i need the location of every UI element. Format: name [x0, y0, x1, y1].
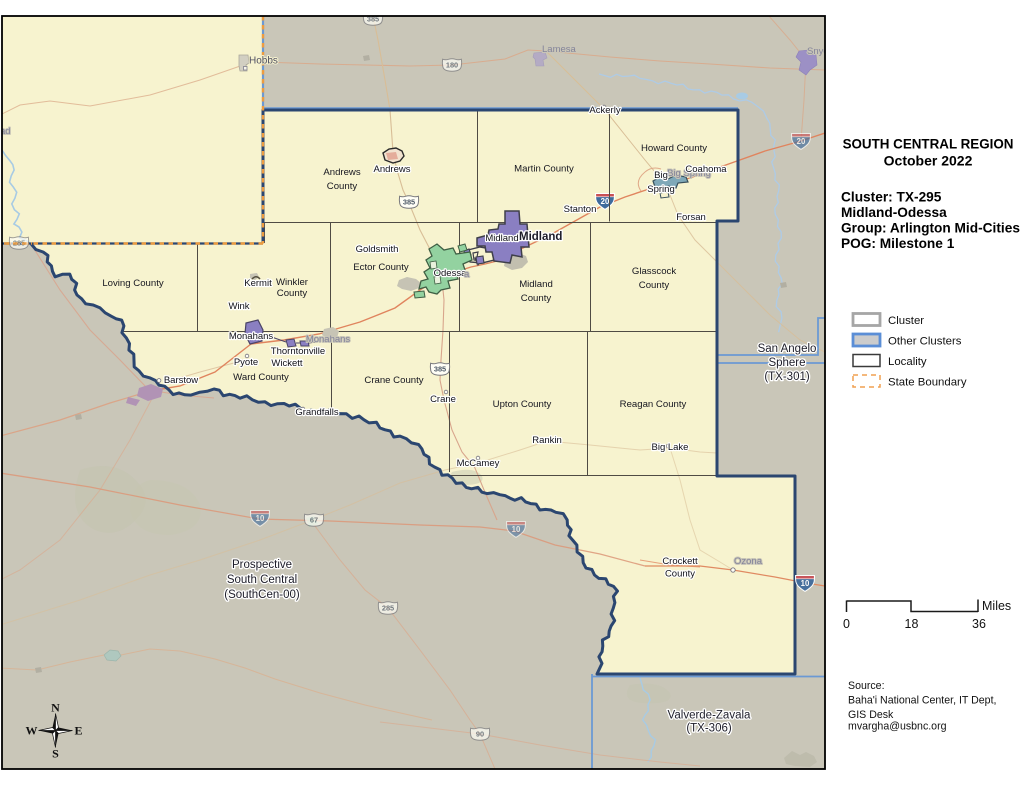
- svg-text:Cluster: Cluster: [888, 315, 924, 327]
- svg-text:(SouthCen-00): (SouthCen-00): [224, 589, 300, 601]
- svg-text:Winkler: Winkler: [276, 277, 309, 288]
- svg-text:180: 180: [446, 61, 458, 70]
- svg-text:10: 10: [801, 579, 810, 588]
- svg-text:SOUTH CENTRAL REGION: SOUTH CENTRAL REGION: [843, 137, 1014, 152]
- svg-text:Ackerly: Ackerly: [589, 105, 620, 116]
- svg-text:a: a: [464, 269, 470, 280]
- svg-text:South Central: South Central: [227, 574, 297, 586]
- svg-text:10: 10: [512, 525, 521, 534]
- svg-text:Monahans: Monahans: [306, 334, 351, 345]
- svg-text:Wink: Wink: [228, 301, 249, 312]
- svg-text:Group: Arlington Mid-Cities: Group: Arlington Mid-Cities: [841, 221, 1020, 236]
- svg-text:385: 385: [434, 365, 446, 374]
- svg-text:Stanton: Stanton: [564, 204, 597, 215]
- svg-text:Reagan County: Reagan County: [620, 399, 687, 410]
- svg-text:Martin County: Martin County: [514, 164, 574, 175]
- svg-text:Glasscock: Glasscock: [632, 266, 676, 277]
- svg-text:Midland: Midland: [519, 231, 562, 243]
- svg-text:Big Lake: Big Lake: [652, 442, 689, 453]
- svg-text:Upton County: Upton County: [493, 399, 552, 410]
- svg-text:Ector County: Ector County: [353, 262, 409, 273]
- svg-text:(TX-301): (TX-301): [764, 371, 810, 383]
- svg-text:Barstow: Barstow: [164, 375, 198, 386]
- svg-text:Monahans: Monahans: [229, 331, 274, 342]
- svg-text:Spring: Spring: [647, 184, 674, 195]
- svg-text:McCamey: McCamey: [457, 458, 500, 469]
- svg-text:Andrews: Andrews: [374, 164, 411, 175]
- svg-text:County: County: [327, 181, 358, 192]
- svg-text:Valverde-Zavala: Valverde-Zavala: [668, 710, 751, 722]
- svg-text:Pyote: Pyote: [234, 357, 258, 368]
- svg-text:Miles: Miles: [982, 599, 1011, 613]
- svg-text:Midland: Midland: [485, 233, 518, 244]
- svg-text:67: 67: [310, 516, 318, 525]
- svg-text:18: 18: [905, 617, 919, 631]
- svg-text:Locality: Locality: [888, 356, 927, 368]
- svg-text:Hobbs: Hobbs: [249, 56, 278, 67]
- svg-text:20: 20: [797, 137, 806, 146]
- svg-text:90: 90: [476, 730, 484, 739]
- svg-text:285: 285: [382, 604, 394, 613]
- svg-text:Kermit: Kermit: [244, 278, 272, 289]
- svg-text:County: County: [639, 280, 670, 291]
- svg-text:E: E: [74, 724, 82, 738]
- svg-text:Loving County: Loving County: [102, 278, 164, 289]
- svg-text:Big: Big: [654, 170, 668, 181]
- svg-text:10: 10: [256, 514, 265, 523]
- svg-text:0: 0: [843, 617, 850, 631]
- svg-text:Wickett: Wickett: [271, 358, 303, 369]
- svg-text:Source:: Source:: [848, 680, 885, 692]
- svg-text:POG: Milestone 1: POG: Milestone 1: [841, 236, 955, 251]
- svg-text:Cluster: TX-295: Cluster: TX-295: [841, 190, 942, 205]
- svg-text:Prospective: Prospective: [232, 559, 292, 571]
- svg-text:36: 36: [972, 617, 986, 631]
- svg-text:S: S: [52, 747, 59, 761]
- svg-text:County: County: [665, 569, 695, 580]
- svg-text:Crockett: Crockett: [662, 556, 698, 567]
- svg-text:State Boundary: State Boundary: [888, 377, 967, 389]
- svg-text:Ozona: Ozona: [734, 556, 763, 567]
- svg-text:Ward County: Ward County: [233, 372, 289, 383]
- svg-text:20: 20: [601, 197, 610, 206]
- svg-text:Forsan: Forsan: [676, 212, 706, 223]
- svg-text:W: W: [26, 724, 38, 738]
- svg-text:Goldsmith: Goldsmith: [356, 244, 399, 255]
- svg-text:Crane: Crane: [430, 394, 456, 405]
- svg-text:Midland-Odessa: Midland-Odessa: [841, 205, 947, 220]
- svg-text:(TX-306): (TX-306): [686, 723, 732, 735]
- svg-text:Odessa: Odessa: [434, 268, 467, 279]
- svg-text:Crane County: Crane County: [364, 375, 423, 386]
- svg-text:GIS Desk: GIS Desk: [848, 709, 894, 721]
- svg-text:County: County: [277, 288, 308, 299]
- svg-text:October 2022: October 2022: [884, 153, 973, 169]
- svg-text:Baha'i National Center, IT Dep: Baha'i National Center, IT Dept,: [848, 695, 996, 707]
- svg-text:Coahoma: Coahoma: [685, 164, 727, 175]
- svg-text:Andrews: Andrews: [323, 167, 361, 178]
- svg-text:N: N: [51, 701, 60, 715]
- svg-text:Midland: Midland: [519, 279, 553, 290]
- svg-text:San Angelo: San Angelo: [758, 343, 817, 355]
- svg-text:Rankin: Rankin: [532, 435, 562, 446]
- svg-text:Other Clusters: Other Clusters: [888, 336, 962, 348]
- svg-text:Grandfalls: Grandfalls: [295, 407, 339, 418]
- svg-text:Thorntonville: Thorntonville: [271, 346, 325, 357]
- svg-text:Lamesa: Lamesa: [542, 44, 577, 55]
- svg-text:Howard County: Howard County: [641, 143, 707, 154]
- svg-text:mvargha@usbnc.org: mvargha@usbnc.org: [848, 721, 947, 733]
- svg-text:County: County: [521, 293, 552, 304]
- svg-text:Sphere: Sphere: [768, 357, 805, 369]
- svg-text:385: 385: [403, 198, 415, 207]
